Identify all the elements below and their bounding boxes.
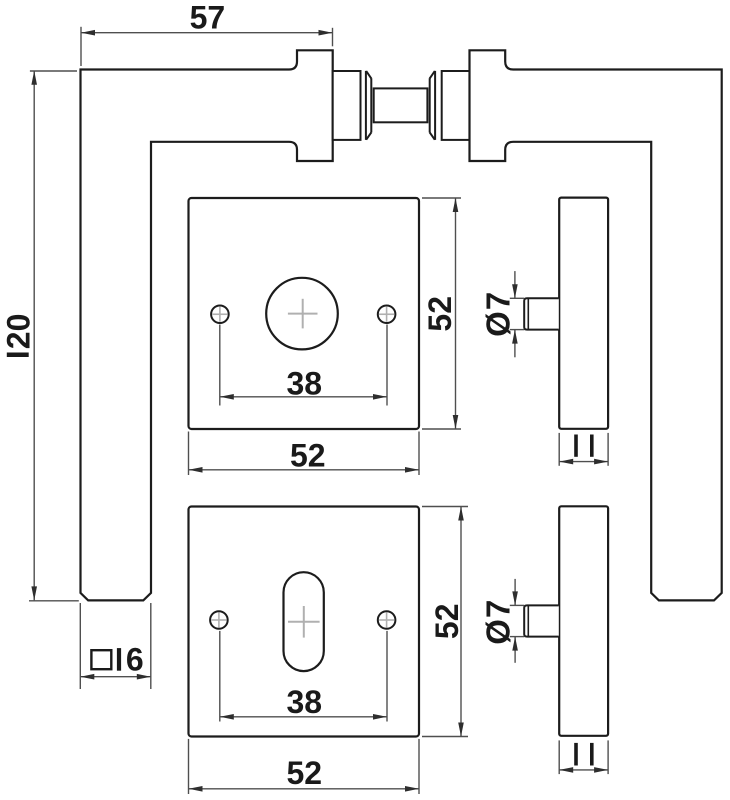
svg-text:52: 52 — [422, 296, 458, 332]
svg-text:52: 52 — [290, 438, 326, 474]
svg-text:38: 38 — [287, 684, 323, 720]
svg-text:6: 6 — [126, 642, 144, 678]
svg-text:20: 20 — [0, 314, 36, 350]
svg-text:Ø7: Ø7 — [480, 291, 517, 337]
svg-text:57: 57 — [190, 0, 226, 35]
svg-text:Ø7: Ø7 — [480, 599, 517, 645]
svg-text:52: 52 — [429, 604, 465, 640]
svg-text:52: 52 — [287, 755, 323, 791]
svg-text:38: 38 — [287, 366, 323, 402]
